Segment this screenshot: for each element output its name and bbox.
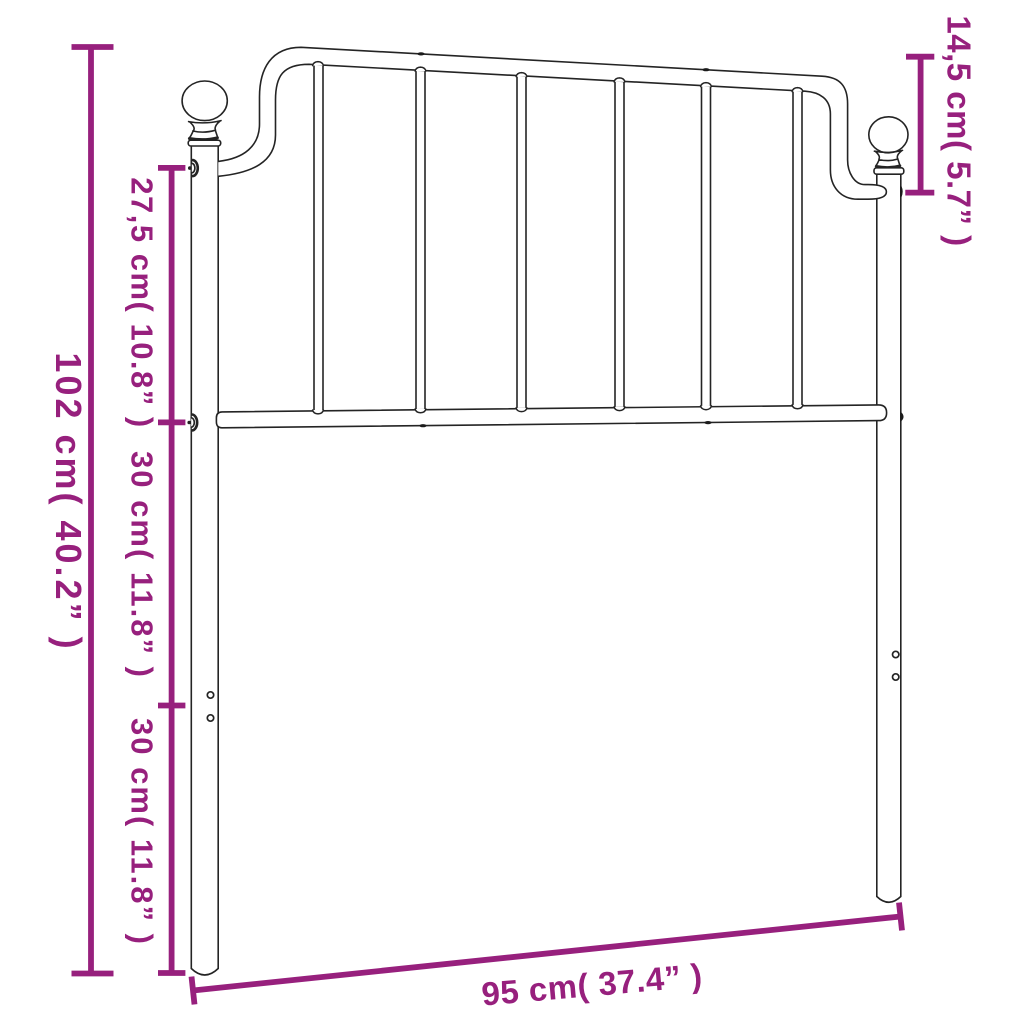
svg-text:14,5 cm( 5.7” ): 14,5 cm( 5.7” ) (941, 15, 978, 246)
svg-text:30 cm( 11.8” ): 30 cm( 11.8” ) (125, 451, 160, 679)
svg-text:95 cm( 37.4” ): 95 cm( 37.4” ) (480, 956, 704, 1012)
svg-text:27,5 cm( 10.8” ): 27,5 cm( 10.8” ) (125, 177, 160, 428)
svg-text:102 cm( 40.2” ): 102 cm( 40.2” ) (48, 352, 89, 651)
svg-text:30 cm( 11.8” ): 30 cm( 11.8” ) (125, 718, 160, 946)
